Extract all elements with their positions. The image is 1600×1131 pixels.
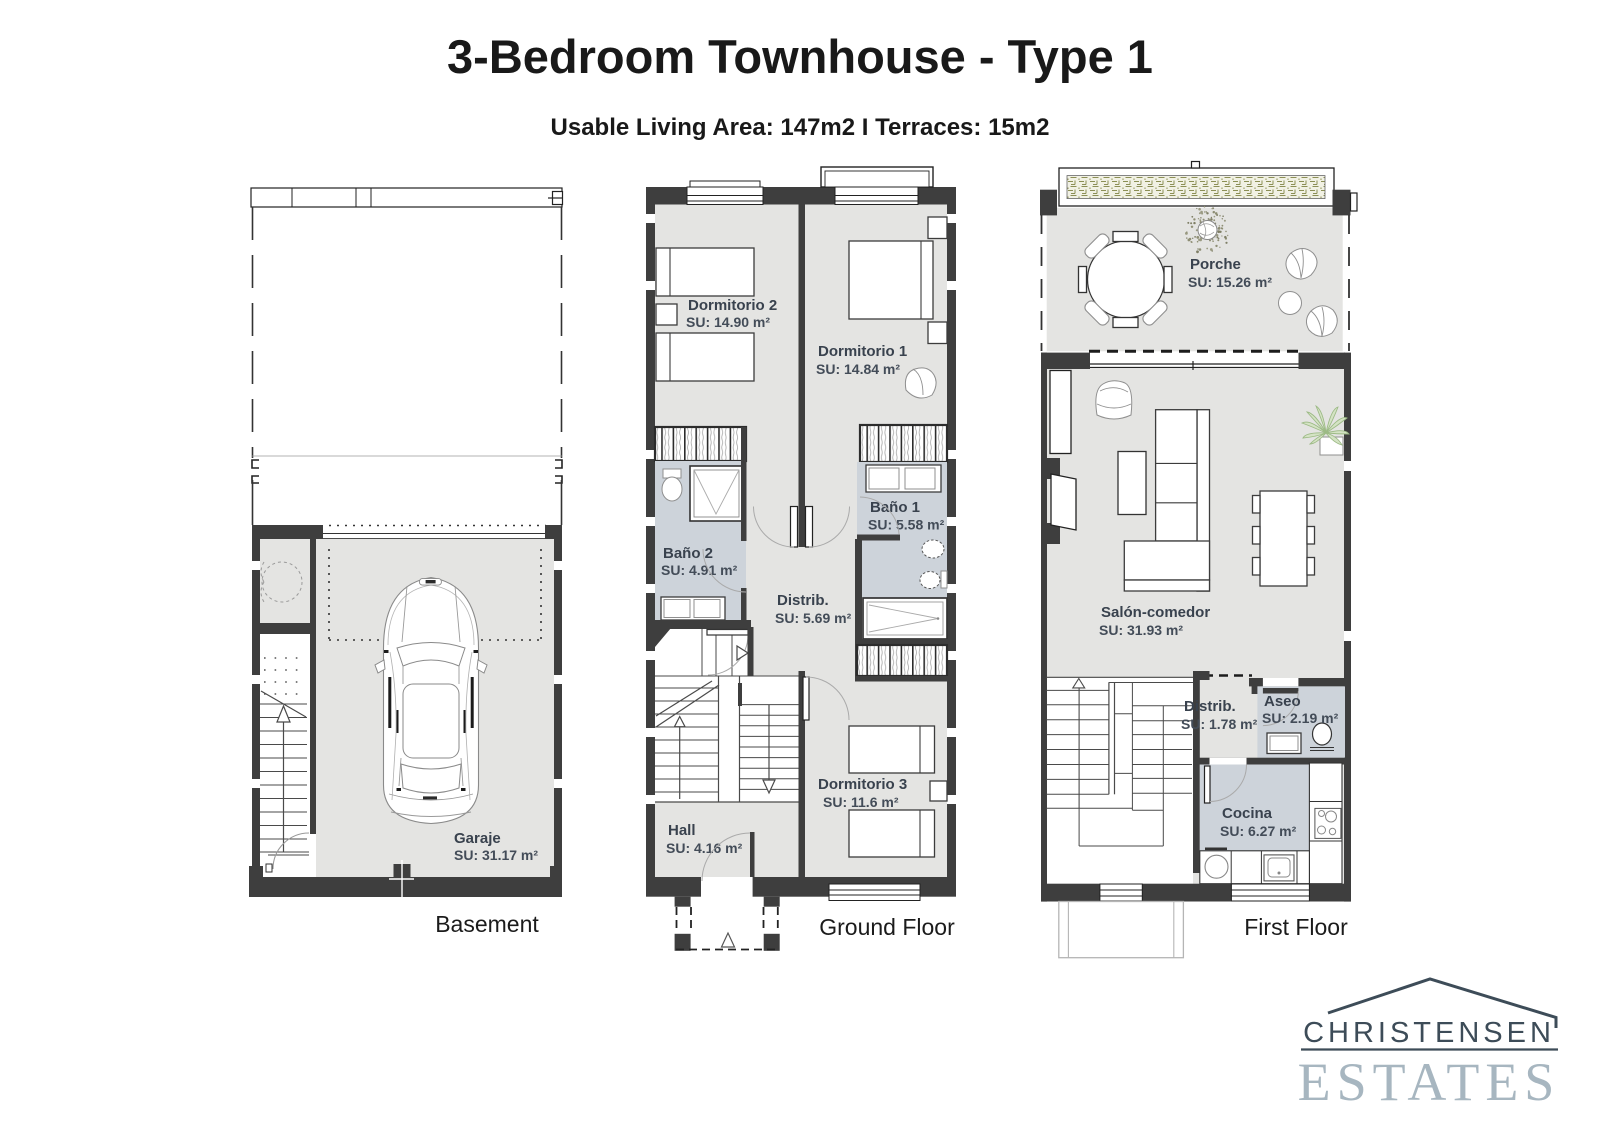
svg-text:Baño 2: Baño 2 — [663, 545, 713, 562]
svg-text:Salón-comedor: Salón-comedor — [1101, 604, 1210, 621]
svg-text:First Floor: First Floor — [1244, 914, 1348, 940]
svg-text:SU: 4.91 m²: SU: 4.91 m² — [661, 562, 738, 578]
svg-text:Distrib.: Distrib. — [777, 592, 829, 609]
svg-text:Hall: Hall — [668, 822, 696, 839]
svg-text:SU: 2.19 m²: SU: 2.19 m² — [1262, 710, 1339, 726]
svg-text:Porche: Porche — [1190, 256, 1241, 273]
svg-text:SU: 11.6 m²: SU: 11.6 m² — [823, 794, 899, 810]
svg-text:SU: 6.27 m²: SU: 6.27 m² — [1220, 823, 1297, 839]
svg-text:Basement: Basement — [435, 911, 539, 937]
svg-text:Dormitorio 3: Dormitorio 3 — [818, 776, 907, 793]
svg-text:SU: 31.17 m²: SU: 31.17 m² — [454, 847, 538, 863]
svg-text:Dormitorio 1: Dormitorio 1 — [818, 343, 907, 360]
svg-text:Dormitorio 2: Dormitorio 2 — [688, 297, 777, 314]
svg-text:SU: 5.58 m²: SU: 5.58 m² — [868, 517, 945, 533]
svg-text:Distrib.: Distrib. — [1184, 698, 1236, 715]
svg-text:3-Bedroom Townhouse - Type 1: 3-Bedroom Townhouse - Type 1 — [447, 30, 1153, 83]
svg-text:SU: 14.90 m²: SU: 14.90 m² — [686, 314, 770, 330]
svg-text:Aseo: Aseo — [1264, 693, 1301, 710]
svg-text:SU: 14.84 m²: SU: 14.84 m² — [816, 361, 900, 377]
svg-text:SU: 5.69 m²: SU: 5.69 m² — [775, 610, 852, 626]
svg-text:SU: 1.78 m²: SU: 1.78 m² — [1181, 716, 1258, 732]
svg-text:Garaje: Garaje — [454, 830, 501, 847]
svg-text:SU: 15.26 m²: SU: 15.26 m² — [1188, 274, 1272, 290]
svg-text:Ground Floor: Ground Floor — [819, 914, 955, 940]
svg-text:SU: 31.93 m²: SU: 31.93 m² — [1099, 622, 1183, 638]
svg-text:SU: 4.16 m²: SU: 4.16 m² — [666, 840, 743, 856]
svg-text:Cocina: Cocina — [1222, 805, 1273, 822]
svg-text:Usable Living Area: 147m2 I Te: Usable Living Area: 147m2 I Terraces: 15… — [551, 114, 1050, 141]
svg-text:ESTATES: ESTATES — [1298, 1052, 1561, 1112]
svg-text:CHRISTENSEN: CHRISTENSEN — [1303, 1017, 1555, 1049]
